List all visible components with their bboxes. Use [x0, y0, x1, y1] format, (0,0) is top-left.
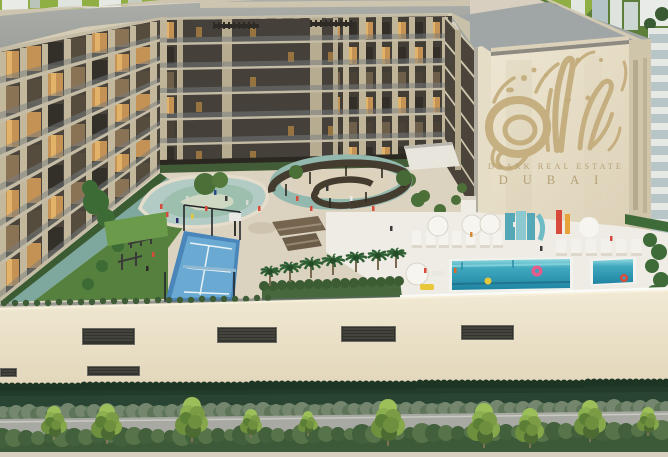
svg-text:DAARK REAL ESTATE: DAARK REAL ESTATE	[488, 162, 624, 171]
svg-text:DUBAI: DUBAI	[499, 173, 614, 187]
